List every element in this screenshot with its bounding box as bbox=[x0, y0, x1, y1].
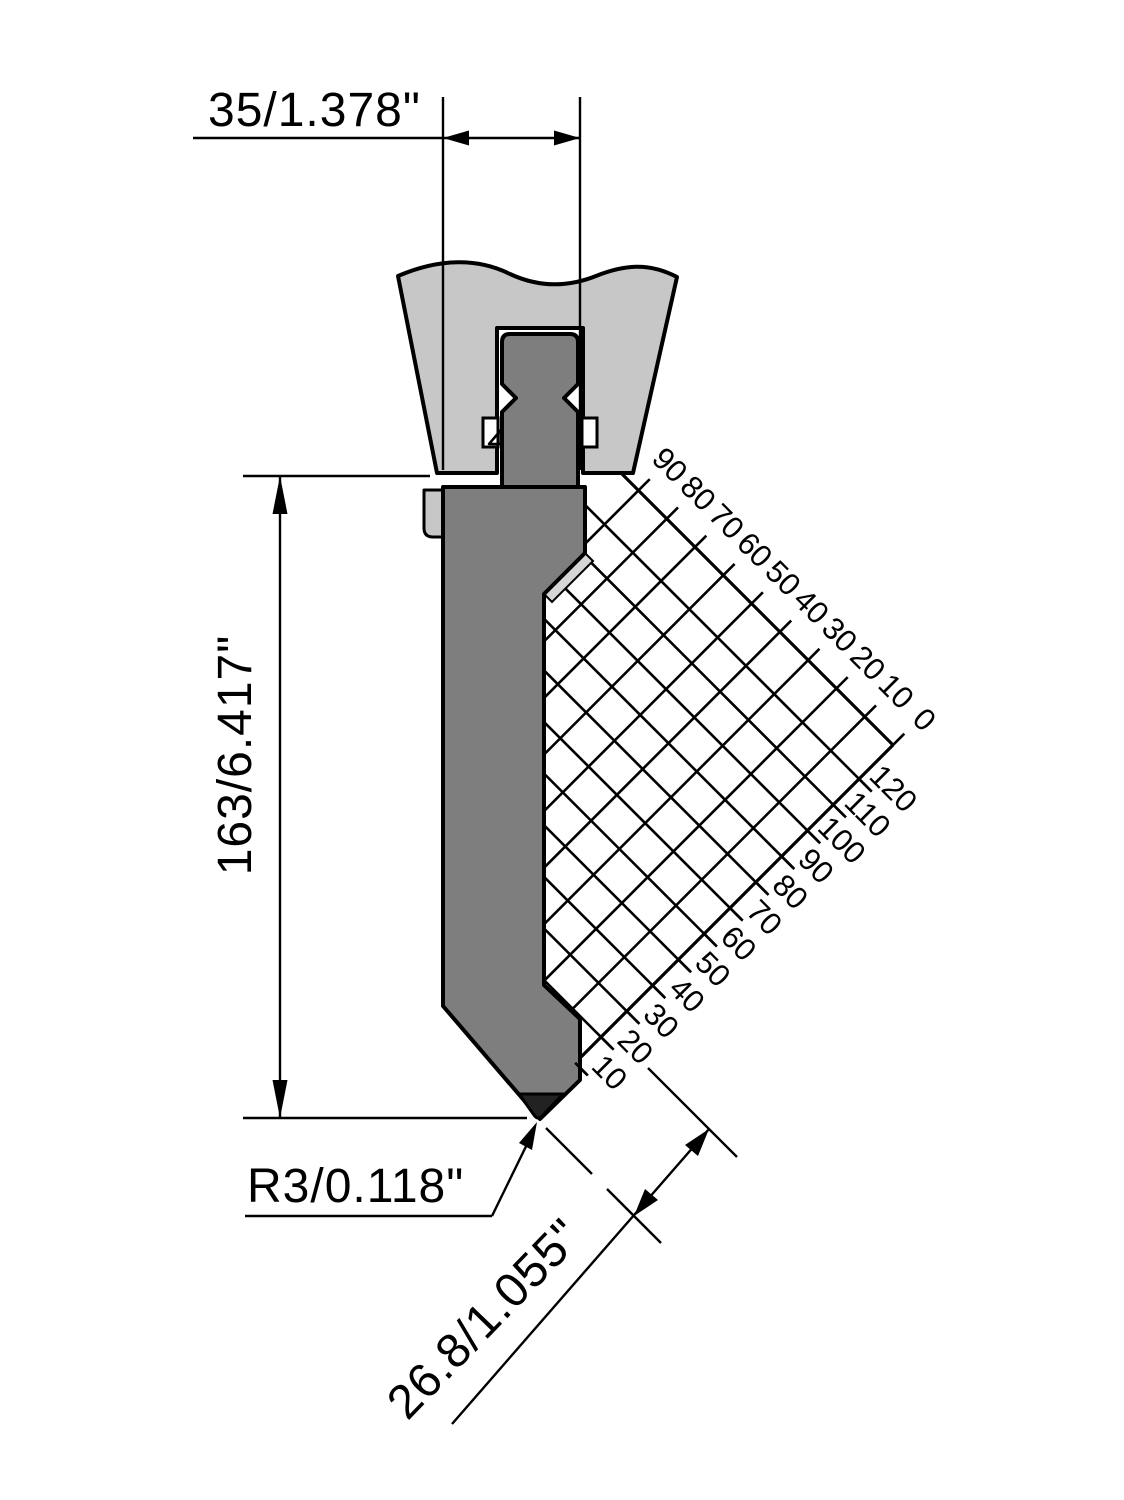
radius-dimension-label: R3/0.118" bbox=[247, 1160, 464, 1213]
technical-drawing-page: 9080706050403020100120110100908070605040… bbox=[0, 0, 1124, 1500]
safety-tab bbox=[424, 490, 443, 537]
punch-tang bbox=[502, 334, 578, 487]
width-dimension-label: 35/1.378" bbox=[208, 84, 421, 137]
technical-drawing: 9080706050403020100120110100908070605040… bbox=[0, 0, 1124, 1500]
height-dimension-label: 163/6.417" bbox=[209, 635, 262, 876]
clamp-groove-right bbox=[582, 418, 597, 447]
